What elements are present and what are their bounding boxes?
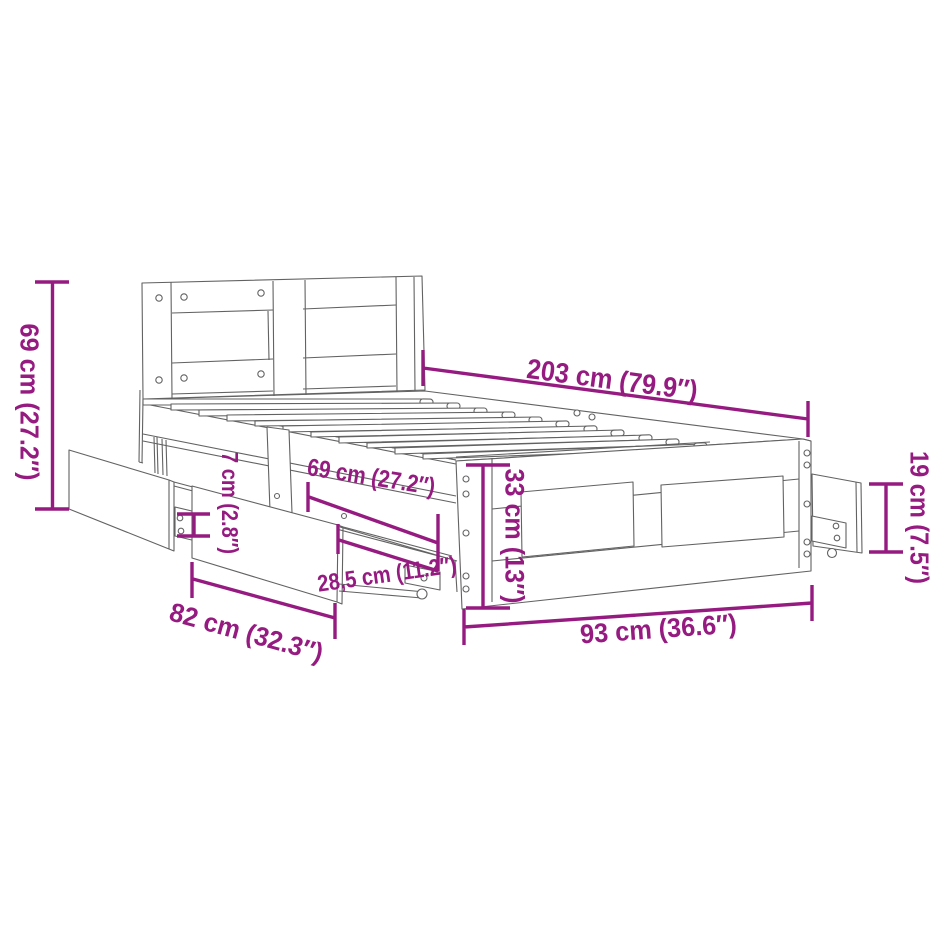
svg-text:7 cm (2.8″): 7 cm (2.8″) [217, 452, 243, 554]
svg-text:69 cm (27.2″): 69 cm (27.2″) [15, 324, 43, 481]
svg-text:19 cm (7.5″): 19 cm (7.5″) [905, 451, 933, 584]
svg-text:33 cm (13″): 33 cm (13″) [500, 469, 530, 604]
